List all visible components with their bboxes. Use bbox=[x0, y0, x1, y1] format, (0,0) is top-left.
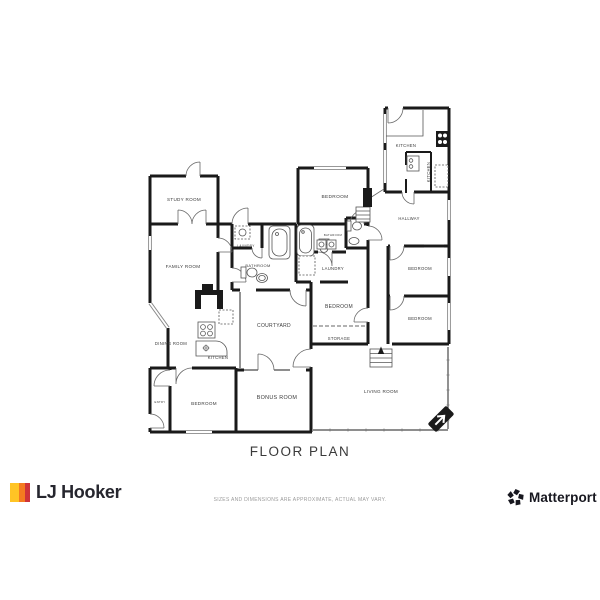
room-label-bedroom-sw: BEDROOM bbox=[191, 401, 217, 406]
matterport-logo: Matterport® bbox=[506, 488, 600, 507]
room-label-bonus: BONUS ROOM bbox=[257, 395, 298, 401]
room-label-family: FAMILY ROOM bbox=[166, 264, 201, 269]
sink-icon bbox=[257, 274, 268, 283]
room-label-laundry-closet: LAUNDRY bbox=[237, 244, 255, 248]
flyer-page: STUDY ROOM FAMILY ROOM LAUNDRY BATHROOM … bbox=[0, 0, 600, 600]
room-label-study: STUDY ROOM bbox=[167, 197, 201, 202]
room-label-entry: ENTRY bbox=[155, 400, 166, 404]
stove-icon bbox=[198, 322, 215, 338]
room-label-kitchen-ne: KITCHEN bbox=[396, 143, 416, 148]
room-label-laundry-central: LAUNDRY bbox=[322, 266, 344, 271]
washer-drum-icon bbox=[239, 229, 246, 236]
room-label-kitchen-pantry: KITCHEN bbox=[426, 162, 431, 182]
fireplace-flue bbox=[202, 284, 213, 290]
closet-block bbox=[363, 188, 372, 207]
stairs-icon bbox=[356, 207, 370, 222]
pantry-appliance-icon bbox=[407, 156, 419, 171]
wc-toilet-icon bbox=[347, 221, 362, 231]
room-label-kitchen-west: KITCHEN bbox=[208, 355, 228, 360]
floor-plan-drawing: STUDY ROOM FAMILY ROOM LAUNDRY BATHROOM … bbox=[0, 0, 600, 600]
kitchen-cabinet-icon bbox=[219, 310, 233, 324]
room-label-bedroom-north: BEDROOM bbox=[322, 194, 349, 200]
room-label-bedroom-e1: BEDROOM bbox=[408, 266, 432, 271]
fireplace-icon bbox=[195, 290, 223, 309]
kitchen-island-icon bbox=[196, 341, 227, 356]
room-label-bathroom-mid: BATHROOM bbox=[324, 233, 343, 237]
bathtub-icon-2 bbox=[297, 225, 314, 256]
room-label-storage: STORAGE bbox=[328, 336, 351, 341]
fixtures bbox=[196, 110, 448, 367]
matterport-pinwheel-icon bbox=[506, 488, 525, 507]
entrance-arrow-icon bbox=[428, 406, 455, 433]
laundry-cabinet-icon bbox=[299, 256, 315, 275]
kitchen-range-icon bbox=[436, 131, 449, 147]
room-label-dining: DINING ROOM bbox=[155, 341, 187, 346]
pantry-shelf-icon bbox=[435, 165, 448, 187]
toilet-icon bbox=[241, 267, 257, 278]
matterport-wordmark: Matterport bbox=[529, 490, 597, 505]
room-label-bedroom-e2: BEDROOM bbox=[408, 316, 432, 321]
plan-title: FLOOR PLAN bbox=[250, 444, 351, 459]
room-label-bathroom-west: BATHROOM bbox=[245, 263, 270, 268]
room-label-hallway: HALLWAY bbox=[398, 216, 419, 221]
wc-sink-icon bbox=[349, 238, 359, 245]
bathtub-icon bbox=[269, 226, 290, 259]
room-label-bedroom-central: BEDROOM bbox=[325, 304, 353, 310]
room-label-living: LIVING ROOM bbox=[364, 389, 398, 394]
room-label-courtyard: COURTYARD bbox=[257, 323, 291, 329]
